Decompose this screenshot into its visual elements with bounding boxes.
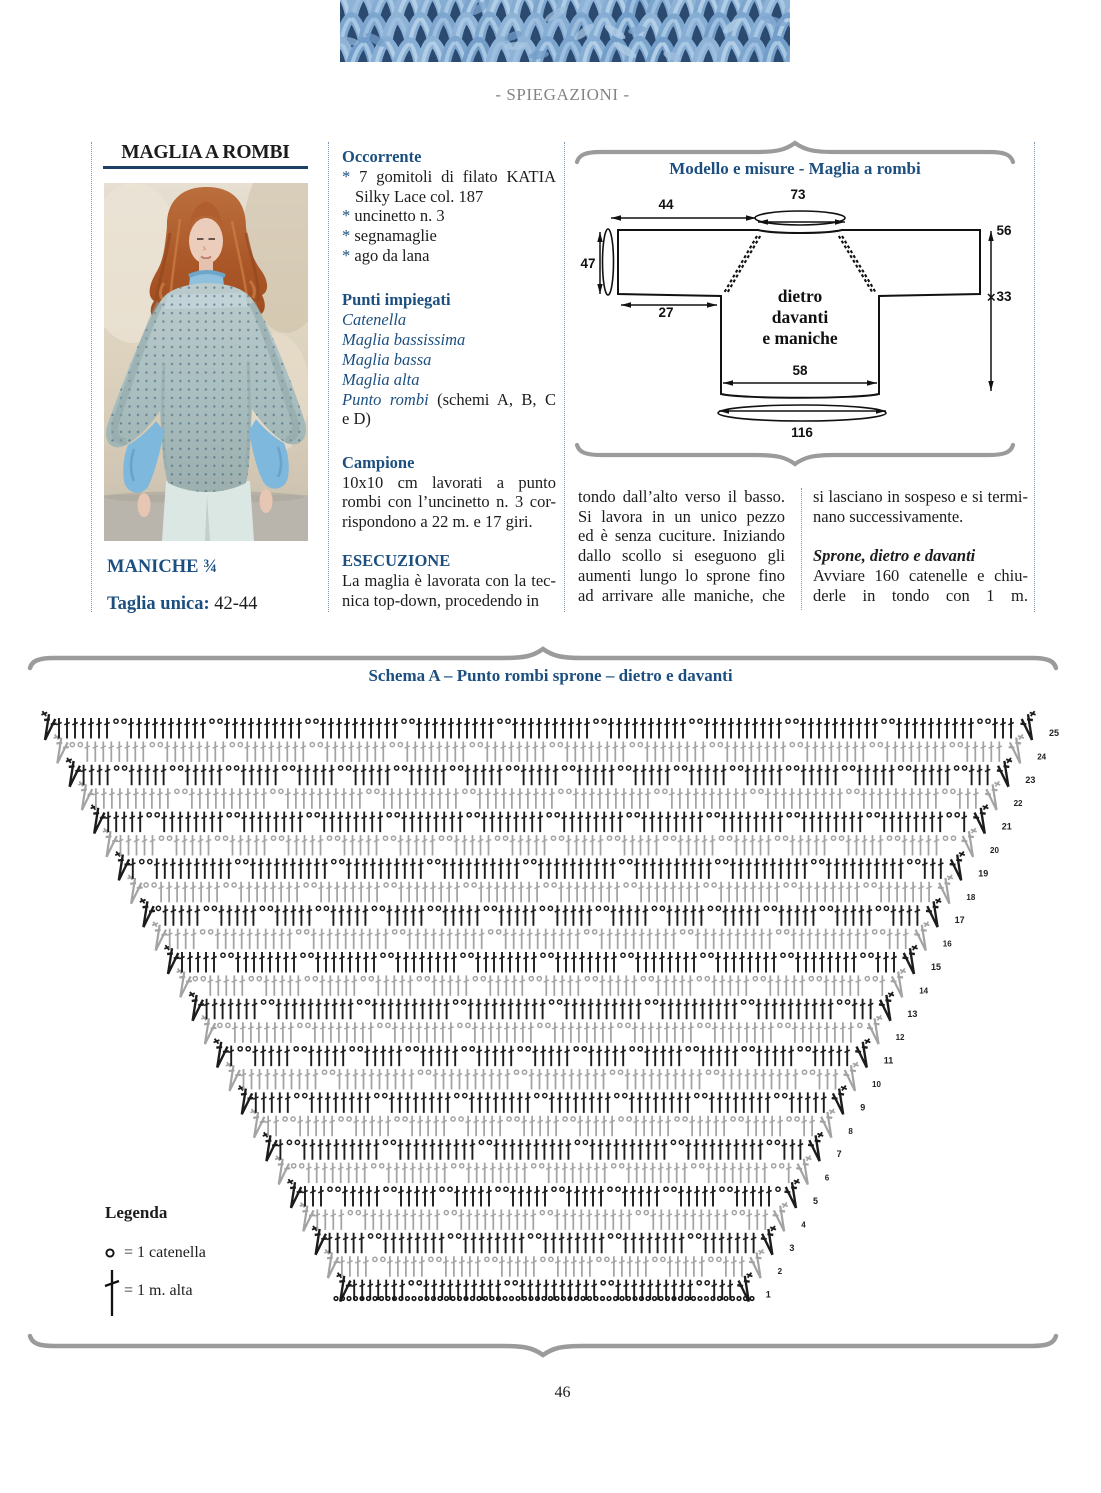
svg-text:9: 9 bbox=[860, 1102, 865, 1112]
svg-text:5: 5 bbox=[813, 1196, 818, 1206]
svg-text:11: 11 bbox=[884, 1056, 894, 1066]
svg-text:8: 8 bbox=[848, 1127, 853, 1136]
svg-text:15: 15 bbox=[931, 962, 941, 972]
svg-text:10: 10 bbox=[872, 1080, 881, 1089]
svg-text:e maniche: e maniche bbox=[762, 328, 838, 348]
svg-text:47: 47 bbox=[580, 256, 595, 271]
svg-text:davanti: davanti bbox=[772, 307, 829, 327]
svg-text:14: 14 bbox=[919, 986, 928, 995]
svg-text:3: 3 bbox=[789, 1243, 794, 1253]
svg-text:58: 58 bbox=[792, 363, 808, 378]
svg-text:22: 22 bbox=[1014, 799, 1023, 808]
svg-text:4: 4 bbox=[801, 1220, 806, 1229]
svg-text:56: 56 bbox=[996, 223, 1012, 238]
svg-text:25: 25 bbox=[1049, 728, 1059, 738]
svg-text:13: 13 bbox=[907, 1009, 917, 1019]
svg-text:17: 17 bbox=[955, 915, 965, 925]
svg-text:2: 2 bbox=[778, 1267, 783, 1276]
svg-text:1: 1 bbox=[766, 1290, 771, 1300]
svg-text:dietro: dietro bbox=[778, 286, 823, 306]
svg-text:18: 18 bbox=[966, 893, 975, 902]
svg-text:16: 16 bbox=[943, 940, 952, 949]
svg-text:19: 19 bbox=[978, 868, 988, 878]
svg-text:116: 116 bbox=[791, 425, 813, 440]
svg-text:33: 33 bbox=[996, 289, 1012, 304]
svg-text:7: 7 bbox=[837, 1149, 842, 1159]
svg-text:23: 23 bbox=[1025, 775, 1035, 785]
svg-text:6: 6 bbox=[825, 1174, 830, 1183]
svg-text:Modello e misure - Maglia a ro: Modello e misure - Maglia a rombi bbox=[669, 159, 921, 178]
svg-text:24: 24 bbox=[1037, 752, 1046, 761]
svg-text:12: 12 bbox=[896, 1033, 905, 1042]
svg-text:21: 21 bbox=[1002, 822, 1012, 832]
svg-text:27: 27 bbox=[658, 305, 673, 320]
svg-text:20: 20 bbox=[990, 846, 999, 855]
svg-text:44: 44 bbox=[658, 197, 674, 212]
svg-text:73: 73 bbox=[790, 187, 806, 202]
